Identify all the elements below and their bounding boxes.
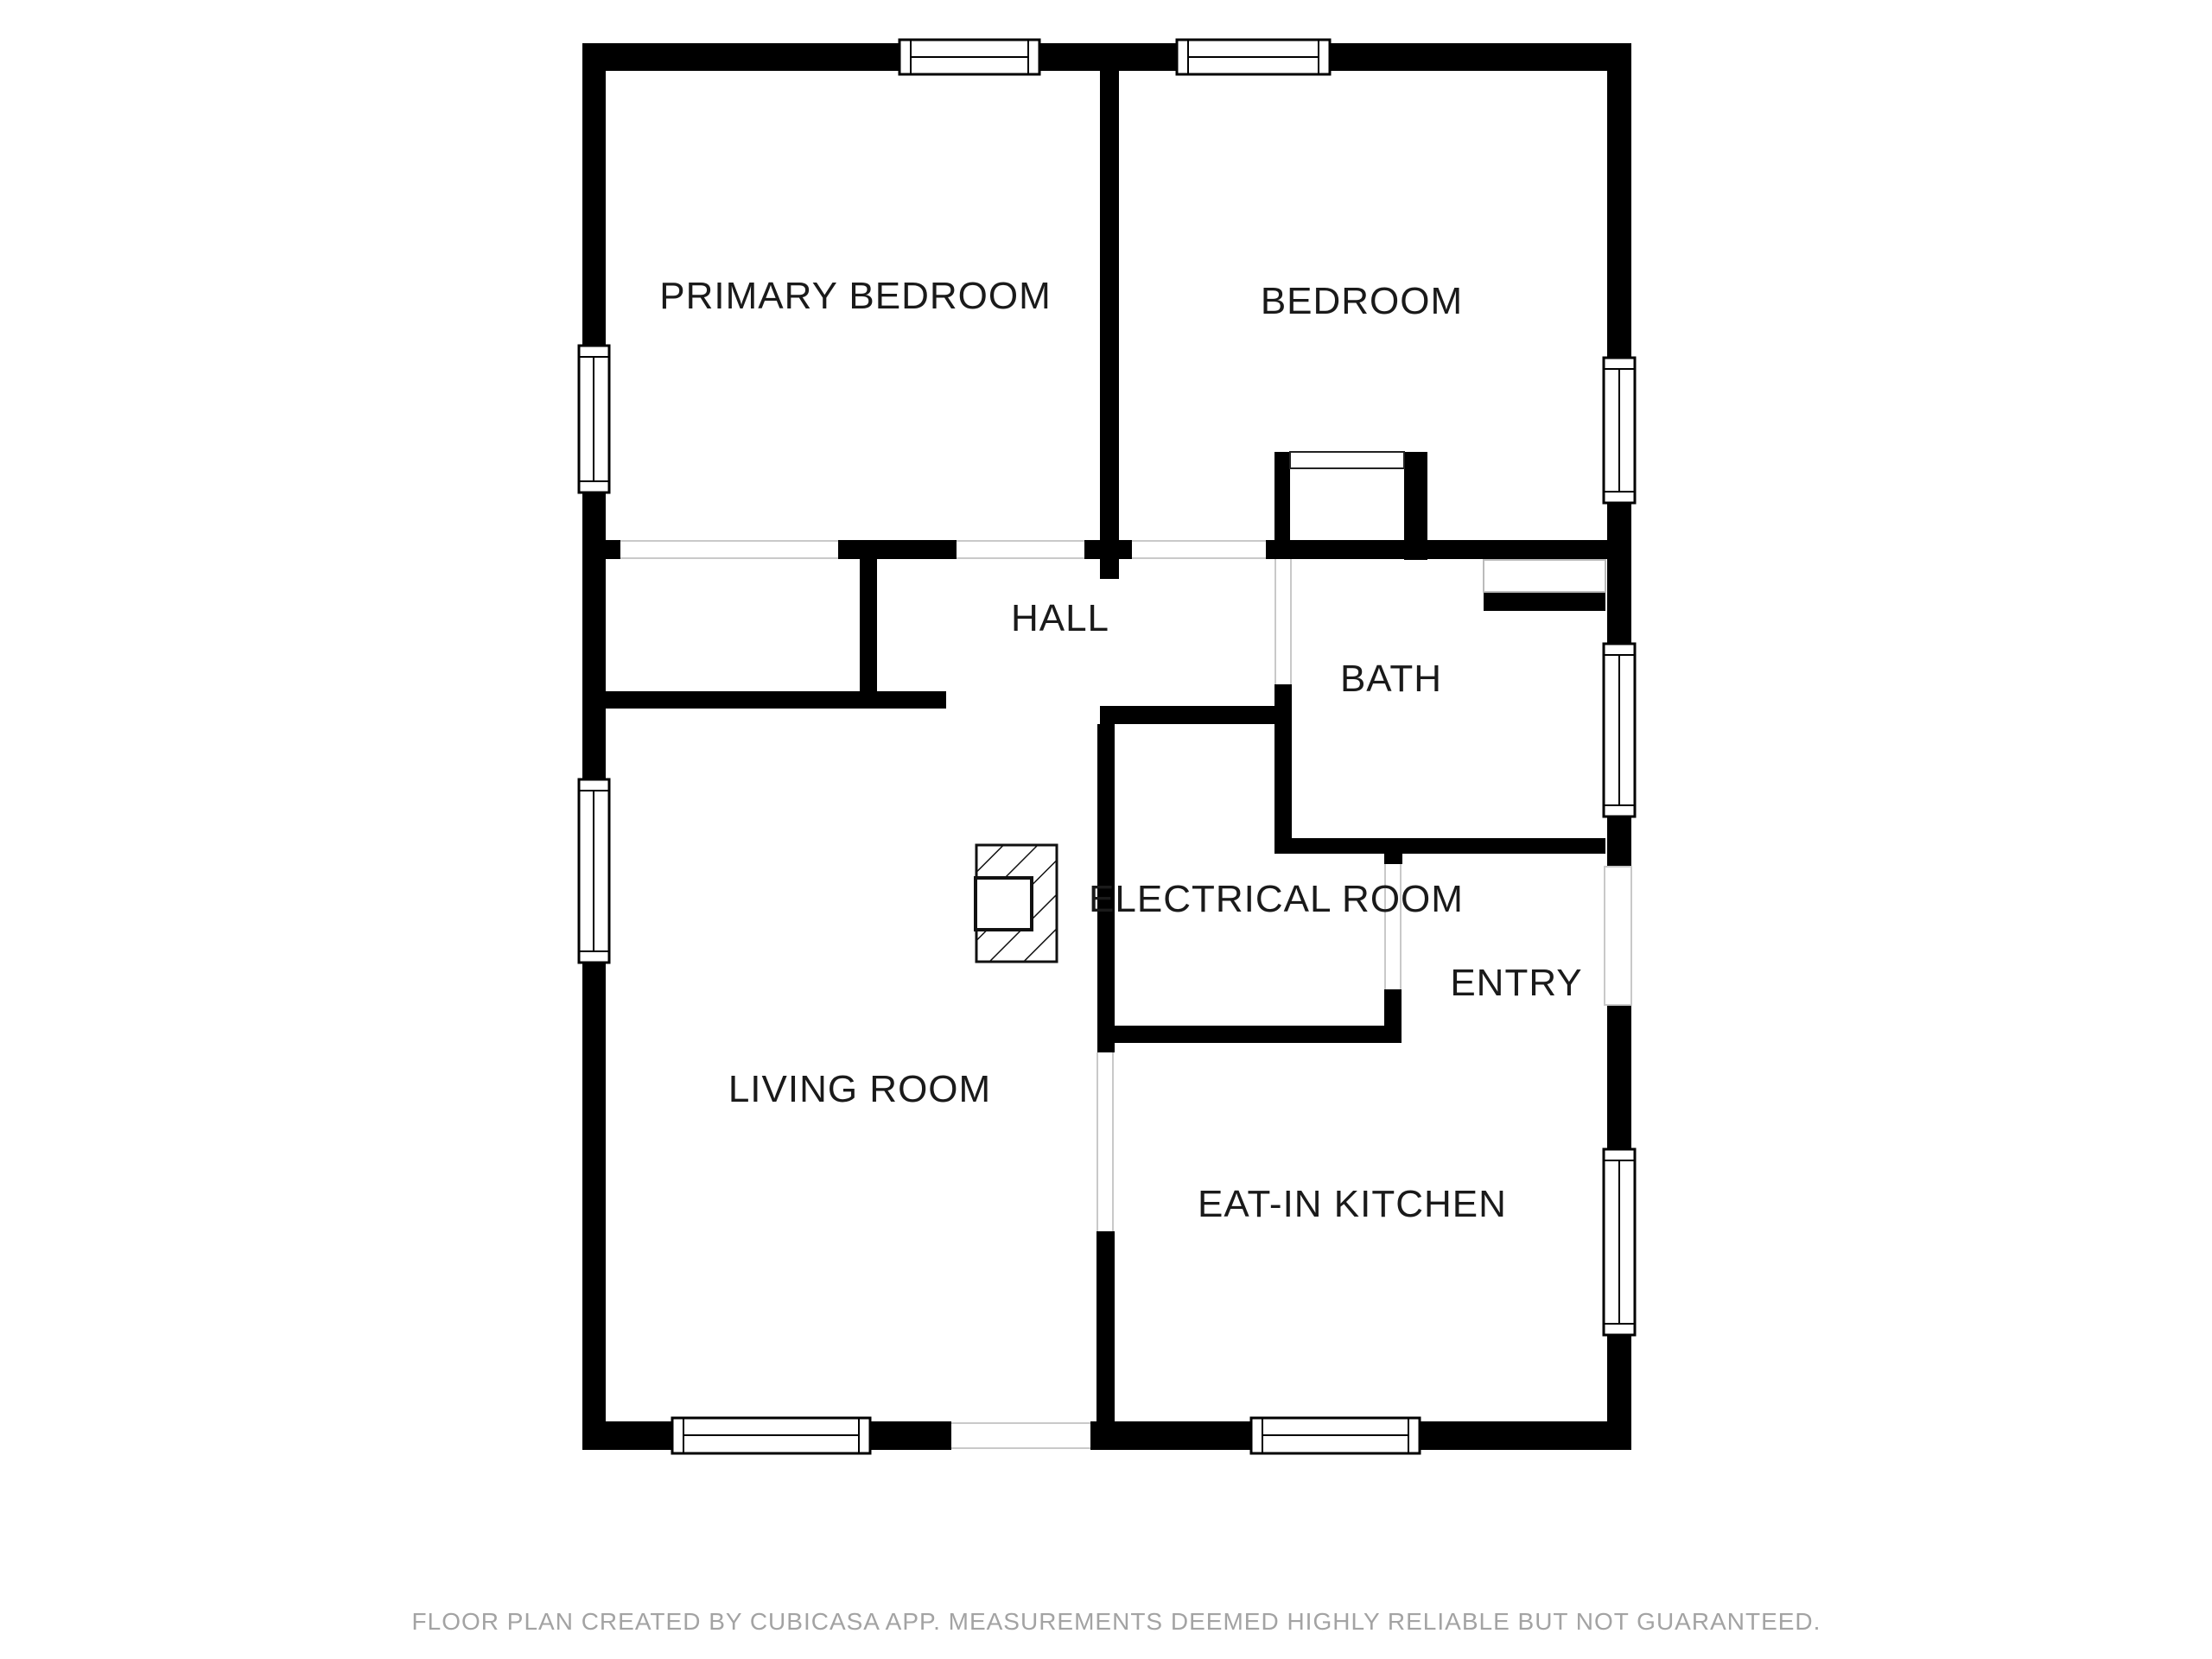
wall-segment [1084,540,1132,559]
wall-bath-niche-bar [1484,592,1605,611]
room-label-electrical-room: ELECTRICAL ROOM [1089,878,1464,920]
chimney-symbol [976,845,1057,962]
room-label-primary-bedroom: PRIMARY BEDROOM [659,275,1051,317]
window-symbol [579,779,609,963]
room-label-bath: BATH [1340,658,1442,700]
wall-left [582,43,606,1450]
wall-entry-divider [1384,989,1402,1043]
floor-plan-canvas: PRIMARY BEDROOM BEDROOM HALL BATH ELECTR… [0,0,2212,1659]
wall-bath-stub [1384,854,1402,864]
window-symbol [672,1418,870,1453]
sliding-door-symbol [1290,452,1404,468]
window-symbol [899,40,1039,74]
wall-segment [606,540,620,559]
chimney-flue [976,878,1032,930]
wall-bedroom-divider [1100,71,1119,579]
wall-top [582,43,1631,71]
window-symbol [1604,644,1635,817]
window-symbol [579,346,609,493]
door-opening [620,540,838,559]
room-label-bedroom: BEDROOM [1261,280,1463,322]
floor-plan-page: PRIMARY BEDROOM BEDROOM HALL BATH ELECTR… [0,0,2212,1659]
window-symbol [1604,1149,1635,1335]
wall-hall-closet-bottom [606,691,946,709]
wall-bedroom-closet-right [1404,452,1427,560]
window-symbol [1604,358,1635,503]
door-opening [957,540,1084,559]
wall-bedroom-closet-left [1274,452,1290,562]
door-opening [1274,559,1292,684]
wall-segment [838,540,957,559]
wall-bath-bottom [1279,838,1605,854]
window-symbol [1177,40,1330,74]
footer-disclaimer: FLOOR PLAN CREATED BY CUBICASA APP. MEAS… [412,1608,1821,1635]
wall-electrical-bottom [1115,1026,1402,1043]
door-opening [1096,1052,1115,1231]
wall-hall-closet-right [860,559,877,691]
patio-door-opening [951,1421,1090,1450]
room-label-eat-in-kitchen: EAT-IN KITCHEN [1198,1183,1507,1225]
room-label-hall: HALL [1011,597,1109,639]
door-opening [1132,540,1266,559]
wall-kitchen-divider [1096,1231,1115,1423]
wall-segment [1266,540,1607,559]
window-symbol [1251,1418,1420,1453]
bath-niche [1484,560,1605,592]
wall-electrical-top [1100,706,1292,724]
entry-door-opening [1605,867,1631,1005]
room-label-living-room: LIVING ROOM [728,1068,991,1110]
room-label-entry: ENTRY [1450,962,1582,1004]
